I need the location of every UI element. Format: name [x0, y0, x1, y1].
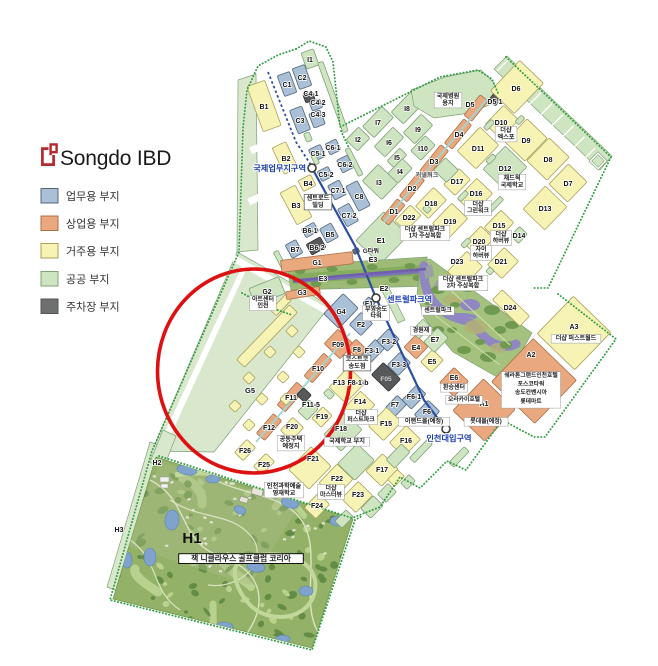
svg-text:I6: I6 — [386, 140, 392, 147]
svg-text:D7: D7 — [564, 181, 573, 188]
svg-text:공동주택예정지: 공동주택예정지 — [280, 435, 303, 450]
svg-text:G타워: G타워 — [363, 247, 380, 255]
svg-text:H2: H2 — [153, 460, 162, 467]
svg-text:D11: D11 — [472, 146, 485, 153]
svg-text:공공 부지: 공공 부지 — [66, 273, 110, 286]
svg-text:더샵 퍼스트월드: 더샵 퍼스트월드 — [556, 334, 597, 342]
svg-text:C3: C3 — [296, 118, 305, 125]
svg-text:F3-3: F3-3 — [392, 362, 407, 369]
svg-text:환승센터: 환승센터 — [443, 383, 465, 391]
svg-text:H3: H3 — [115, 527, 124, 534]
svg-text:커낼워크: 커낼워크 — [416, 171, 439, 179]
svg-text:F05: F05 — [380, 376, 392, 383]
svg-text:B5: B5 — [326, 232, 335, 239]
svg-text:더샵 센트럴파크1차 주상복합: 더샵 센트럴파크1차 주상복합 — [405, 225, 446, 240]
svg-text:F18: F18 — [335, 426, 347, 433]
svg-text:업무용 부지: 업무용 부지 — [66, 190, 120, 203]
svg-text:D21: D21 — [495, 259, 508, 266]
svg-text:I4: I4 — [397, 169, 403, 176]
svg-text:I8: I8 — [404, 106, 410, 113]
svg-text:A2: A2 — [527, 352, 536, 359]
svg-text:센트럴파크: 센트럴파크 — [424, 306, 452, 314]
svg-text:F7: F7 — [391, 402, 399, 409]
svg-text:I3: I3 — [376, 180, 382, 187]
svg-text:E5: E5 — [428, 359, 437, 366]
svg-text:F23: F23 — [352, 492, 364, 499]
svg-text:E3: E3 — [319, 276, 328, 283]
svg-text:B6-1: B6-1 — [302, 228, 317, 235]
svg-text:C1: C1 — [283, 82, 292, 89]
svg-text:D5: D5 — [466, 102, 475, 109]
svg-text:D5-1: D5-1 — [487, 99, 502, 106]
svg-text:F19: F19 — [316, 414, 328, 421]
svg-text:G2: G2 — [262, 289, 271, 296]
svg-text:코스트코송도점: 코스트코송도점 — [346, 356, 369, 370]
svg-text:F26: F26 — [239, 448, 251, 455]
svg-text:D3: D3 — [430, 159, 439, 166]
svg-text:채드윅국제학교: 채드윅국제학교 — [501, 174, 524, 189]
svg-text:I7: I7 — [375, 120, 381, 127]
svg-text:F15: F15 — [380, 421, 392, 428]
svg-text:인천대입구역: 인천대입구역 — [426, 433, 471, 443]
svg-text:이랜드몰(예정): 이랜드몰(예정) — [405, 417, 443, 425]
svg-text:C4-3: C4-3 — [310, 112, 325, 119]
svg-text:G4: G4 — [336, 309, 345, 316]
svg-text:C8: C8 — [355, 194, 364, 201]
svg-text:경원재: 경원재 — [413, 326, 430, 334]
svg-text:F09: F09 — [332, 342, 344, 349]
svg-text:D4: D4 — [455, 132, 464, 139]
svg-text:F10: F10 — [312, 366, 324, 373]
svg-text:F6-1: F6-1 — [407, 394, 422, 401]
svg-text:C6-2: C6-2 — [337, 162, 352, 169]
svg-text:G5: G5 — [245, 386, 255, 395]
svg-text:D23: D23 — [451, 259, 464, 266]
svg-text:D12: D12 — [499, 166, 512, 173]
svg-text:D18: D18 — [425, 201, 438, 208]
svg-text:F8: F8 — [353, 347, 361, 354]
svg-text:F6: F6 — [423, 409, 431, 416]
svg-text:E6: E6 — [450, 375, 459, 382]
svg-text:F3-2: F3-2 — [382, 339, 397, 346]
svg-text:E1: E1 — [377, 238, 386, 245]
svg-text:D13: D13 — [539, 206, 552, 213]
svg-text:F25: F25 — [258, 462, 270, 469]
svg-text:I2: I2 — [355, 137, 361, 144]
svg-text:C5-2: C5-2 — [318, 172, 333, 179]
svg-text:B2: B2 — [282, 156, 291, 163]
svg-text:D8: D8 — [544, 157, 553, 164]
svg-text:D6: D6 — [512, 86, 521, 93]
svg-text:F22: F22 — [331, 476, 343, 483]
svg-text:F11-5: F11-5 — [302, 402, 320, 409]
svg-text:E4: E4 — [412, 345, 421, 352]
svg-text:D16: D16 — [470, 191, 483, 198]
svg-text:F8-1-b: F8-1-b — [348, 380, 369, 387]
svg-text:H1: H1 — [182, 530, 201, 547]
svg-text:D2: D2 — [408, 186, 417, 193]
svg-text:F16: F16 — [400, 438, 412, 445]
svg-text:C6-1: C6-1 — [325, 145, 340, 152]
svg-text:F2: F2 — [357, 322, 365, 329]
svg-text:B1: B1 — [260, 104, 269, 111]
svg-text:F17: F17 — [376, 467, 388, 474]
svg-text:I10: I10 — [418, 146, 428, 153]
svg-text:I9: I9 — [415, 127, 421, 134]
svg-text:D14: D14 — [513, 233, 526, 240]
svg-text:B7: B7 — [291, 247, 300, 254]
svg-text:I1: I1 — [307, 57, 313, 64]
svg-text:F11: F11 — [285, 395, 297, 402]
svg-text:거주용 부지: 거주용 부지 — [66, 245, 120, 258]
svg-text:C7-2: C7-2 — [341, 213, 356, 220]
svg-text:국제업무지구역: 국제업무지구역 — [253, 163, 306, 173]
svg-text:G3: G3 — [297, 290, 306, 297]
svg-text:D17: D17 — [451, 179, 464, 186]
svg-text:C7-1: C7-1 — [330, 188, 345, 195]
svg-text:오라카이호텔: 오라카이호텔 — [448, 395, 481, 403]
svg-text:C4-1: C4-1 — [303, 91, 318, 98]
svg-text:E3: E3 — [369, 257, 378, 264]
svg-text:D20: D20 — [473, 239, 486, 246]
svg-text:D24: D24 — [504, 305, 517, 312]
svg-text:국제학교 부지: 국제학교 부지 — [329, 437, 365, 445]
svg-text:I5: I5 — [394, 155, 400, 162]
svg-text:잭 니클라우스 골프클럽 코리아: 잭 니클라우스 골프클럽 코리아 — [191, 553, 292, 563]
svg-text:D9: D9 — [522, 138, 531, 145]
svg-text:D19: D19 — [444, 219, 457, 226]
svg-text:롯데몰(예정): 롯데몰(예정) — [470, 417, 502, 425]
svg-text:센트럴파크역: 센트럴파크역 — [387, 294, 432, 304]
svg-text:D1: D1 — [390, 209, 399, 216]
svg-text:F12: F12 — [263, 425, 275, 432]
svg-text:B6-2: B6-2 — [309, 245, 324, 252]
svg-text:F21: F21 — [307, 456, 319, 463]
svg-text:F24: F24 — [311, 503, 323, 510]
svg-text:상업용 부지: 상업용 부지 — [66, 218, 120, 231]
svg-text:F3-1: F3-1 — [365, 348, 380, 355]
svg-text:D10: D10 — [495, 120, 508, 127]
svg-text:F14: F14 — [354, 399, 366, 406]
svg-text:더샵 센트럴파크2차 주상복합: 더샵 센트럴파크2차 주상복합 — [443, 275, 484, 290]
svg-text:D22: D22 — [403, 215, 416, 222]
svg-text:주차장 부지: 주차장 부지 — [66, 301, 120, 314]
svg-text:C2: C2 — [298, 75, 307, 82]
svg-text:F13: F13 — [333, 380, 345, 387]
svg-text:F20: F20 — [286, 424, 298, 431]
svg-text:E7: E7 — [431, 337, 440, 344]
svg-text:C5-1: C5-1 — [310, 151, 325, 158]
svg-text:B4: B4 — [304, 181, 313, 188]
svg-text:D15: D15 — [493, 223, 506, 230]
svg-text:A3: A3 — [570, 324, 579, 331]
svg-text:G1: G1 — [312, 260, 321, 267]
svg-text:B3: B3 — [292, 203, 301, 210]
svg-text:C4-2: C4-2 — [310, 100, 325, 107]
svg-text:Songdo IBD: Songdo IBD — [60, 147, 171, 170]
svg-text:E2: E2 — [380, 286, 389, 293]
